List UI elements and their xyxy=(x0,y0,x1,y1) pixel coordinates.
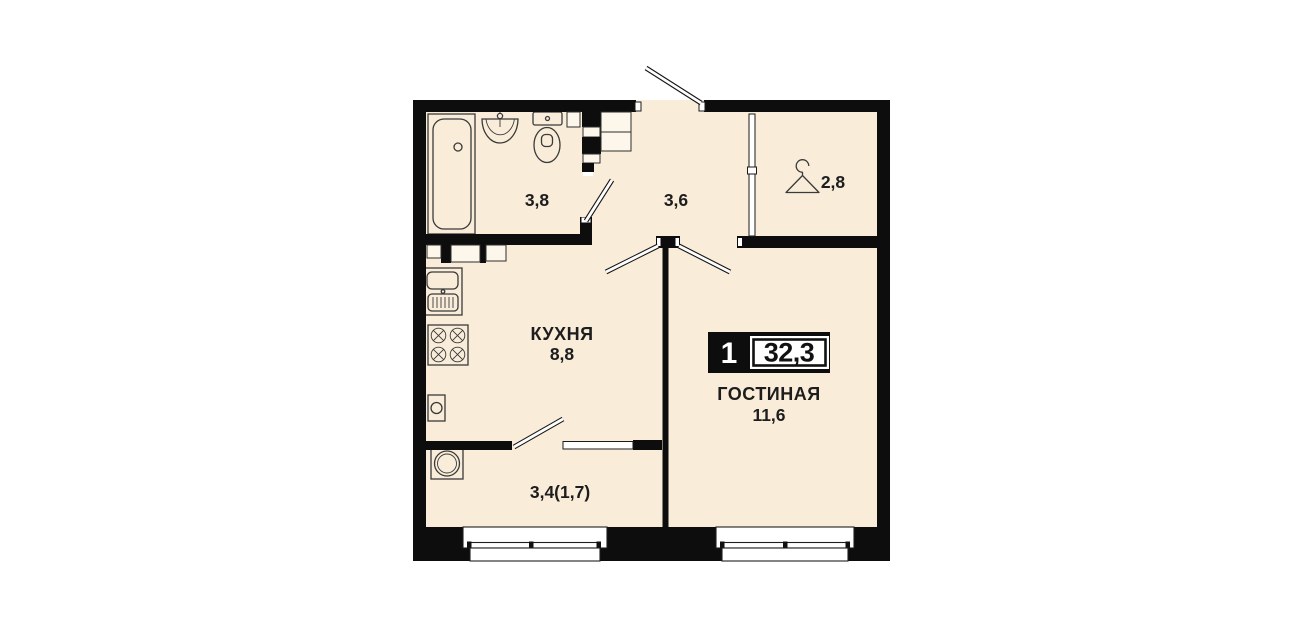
floor-plan-page: 3,8 3,6 2,8 КУХНЯ 8,8 ГОСТИНАЯ 11,6 3,4(… xyxy=(0,0,1301,630)
living-room-area-label: 11,6 xyxy=(752,405,785,425)
apartment-summary-badge: 1 32,3 xyxy=(708,332,830,373)
floor-plan: 3,8 3,6 2,8 КУХНЯ 8,8 ГОСТИНАЯ 11,6 3,4(… xyxy=(0,0,1301,630)
apartment-floor xyxy=(413,100,890,561)
hallway-area-label: 3,6 xyxy=(664,190,689,210)
rooms-count-label: 1 xyxy=(721,337,738,370)
living-room-name-label: ГОСТИНАЯ xyxy=(717,384,820,404)
entrance-door-swing xyxy=(646,68,701,103)
bathroom-area-label: 3,8 xyxy=(525,190,550,210)
balcony-window xyxy=(463,527,607,561)
living-room-window xyxy=(716,527,854,561)
balcony-glazing xyxy=(563,442,633,450)
wardrobe-partition xyxy=(748,114,757,236)
kitchen-area-label: 8,8 xyxy=(550,344,575,364)
wardrobe-area-label: 2,8 xyxy=(821,172,846,192)
balcony-area-label: 3,4(1,7) xyxy=(530,482,590,502)
kitchen-name-label: КУХНЯ xyxy=(530,324,593,344)
total-area-label: 32,3 xyxy=(764,338,815,368)
